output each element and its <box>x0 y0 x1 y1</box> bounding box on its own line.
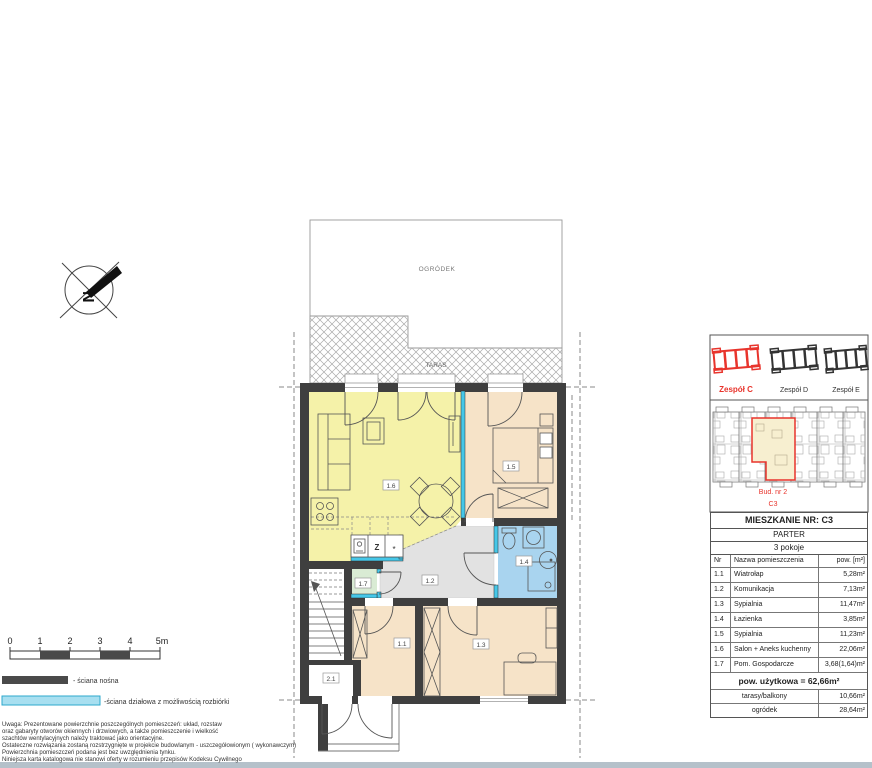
note-line: Powierzchnia pomieszczeń podana jest bez… <box>2 750 432 757</box>
svg-text:1.6: 1.6 <box>386 483 395 490</box>
floor-hall <box>352 606 415 696</box>
building-label: Bud. nr 2 <box>759 489 788 496</box>
extra-row-garden: ogródek 28,64m² <box>711 704 867 717</box>
svg-text:1.4: 1.4 <box>519 559 528 566</box>
room-label-17: 1.7 <box>355 578 371 588</box>
kitchen-sink-label: Z <box>375 543 380 552</box>
room-label-15: 1.5 <box>503 461 519 471</box>
group-label-e: Zespół E <box>832 387 860 394</box>
svg-text:1.1: 1.1 <box>397 641 406 648</box>
scale-bar: 0 1 2 3 4 5m <box>7 636 168 659</box>
compass-north-icon: N <box>60 262 122 318</box>
compass-label: N <box>79 291 96 303</box>
note-line: szachtów wentylacyjnych należy traktować… <box>2 736 432 743</box>
table-row: 1.2 Komunikacja 7,13m² <box>711 583 867 598</box>
legend-load-wall-label: - ściana nośna <box>73 678 119 685</box>
terrace-label: TARAS <box>425 362 447 369</box>
group-label-c: Zespół C <box>719 385 753 394</box>
legend: - ściana nośna -ściana działowa z możliw… <box>2 676 230 706</box>
apartment-floor: PARTER <box>711 529 867 542</box>
header-name: Nazwa pomieszczenia <box>731 555 819 567</box>
note-line: oraz gabaryty otworów okiennych i drzwio… <box>2 729 432 736</box>
kitchen-hob-label: * <box>392 545 395 554</box>
info-panel-graphics: Zespół C Zespół D Zespół E Bud. nr <box>710 335 868 512</box>
legend-load-wall-swatch <box>2 676 68 684</box>
table-row: 1.1 Wiatrołap 5,28m² <box>711 568 867 583</box>
svg-text:1: 1 <box>37 636 42 646</box>
extra-row-terrace: tarasy/balkony 10,66m² <box>711 690 867 704</box>
room-label-12: 1.2 <box>422 575 438 585</box>
legend-partition-swatch <box>2 696 100 705</box>
group-label-d: Zespół D <box>780 387 808 394</box>
apartment-title: MIESZKANIE NR: C3 <box>711 513 867 529</box>
floorplan-sheet: N OGRÓDEK TARAS <box>0 0 872 768</box>
table-row: 1.7 Pom. Gospodarcze 3,68(1,64)m² <box>711 658 867 673</box>
table-row: 1.6 Salon + Aneks kuchenny 22,06m² <box>711 643 867 658</box>
room-label-13: 1.3 <box>473 639 489 649</box>
site-miniplan <box>713 407 865 487</box>
apartment-info-table: MIESZKANIE NR: C3 PARTER 3 pokoje Nr Naz… <box>710 512 868 718</box>
svg-text:3: 3 <box>97 636 102 646</box>
room-label-16: 1.6 <box>383 480 399 490</box>
table-header-row: Nr Nazwa pomieszczenia pow. [m²] <box>711 555 867 568</box>
unit-label: C3 <box>769 501 778 508</box>
header-area: pow. [m²] <box>819 555 867 567</box>
svg-text:1.5: 1.5 <box>506 464 515 471</box>
svg-text:1.7: 1.7 <box>358 581 367 588</box>
svg-text:2.1: 2.1 <box>326 676 335 683</box>
usable-area-total: pow. użytkowa = 62,66m² <box>711 673 867 690</box>
table-row: 1.3 Sypialnia 11,47m² <box>711 598 867 613</box>
note-line: Uwaga: Prezentowane powierzchnie poszcze… <box>2 722 432 729</box>
svg-text:1.3: 1.3 <box>476 642 485 649</box>
floor-bedroom-13 <box>423 606 557 696</box>
apartment-rooms-count: 3 pokoje <box>711 542 867 555</box>
room-label-21: 2.1 <box>323 673 339 683</box>
table-row: 1.5 Sypialnia 11,23m² <box>711 628 867 643</box>
svg-text:4: 4 <box>127 636 132 646</box>
svg-text:1.2: 1.2 <box>425 578 434 585</box>
svg-text:0: 0 <box>7 636 12 646</box>
legend-partition-label: -ściana działowa z możliwością rozbiórki <box>104 699 230 706</box>
note-line: Ostateczne rozwiązania zostaną rozstrzyg… <box>2 743 432 750</box>
note-line: Niniejsza karta katalogowa nie stanowi o… <box>2 757 432 764</box>
room-label-14: 1.4 <box>516 556 532 566</box>
svg-text:2: 2 <box>67 636 72 646</box>
garden-label: OGRÓDEK <box>419 264 456 273</box>
table-row: 1.4 Łazienka 3,85m² <box>711 613 867 628</box>
header-nr: Nr <box>711 555 731 567</box>
svg-text:5m: 5m <box>156 636 169 646</box>
disclaimer-notes: Uwaga: Prezentowane powierzchnie poszcze… <box>2 722 432 763</box>
room-label-11: 1.1 <box>394 638 410 648</box>
